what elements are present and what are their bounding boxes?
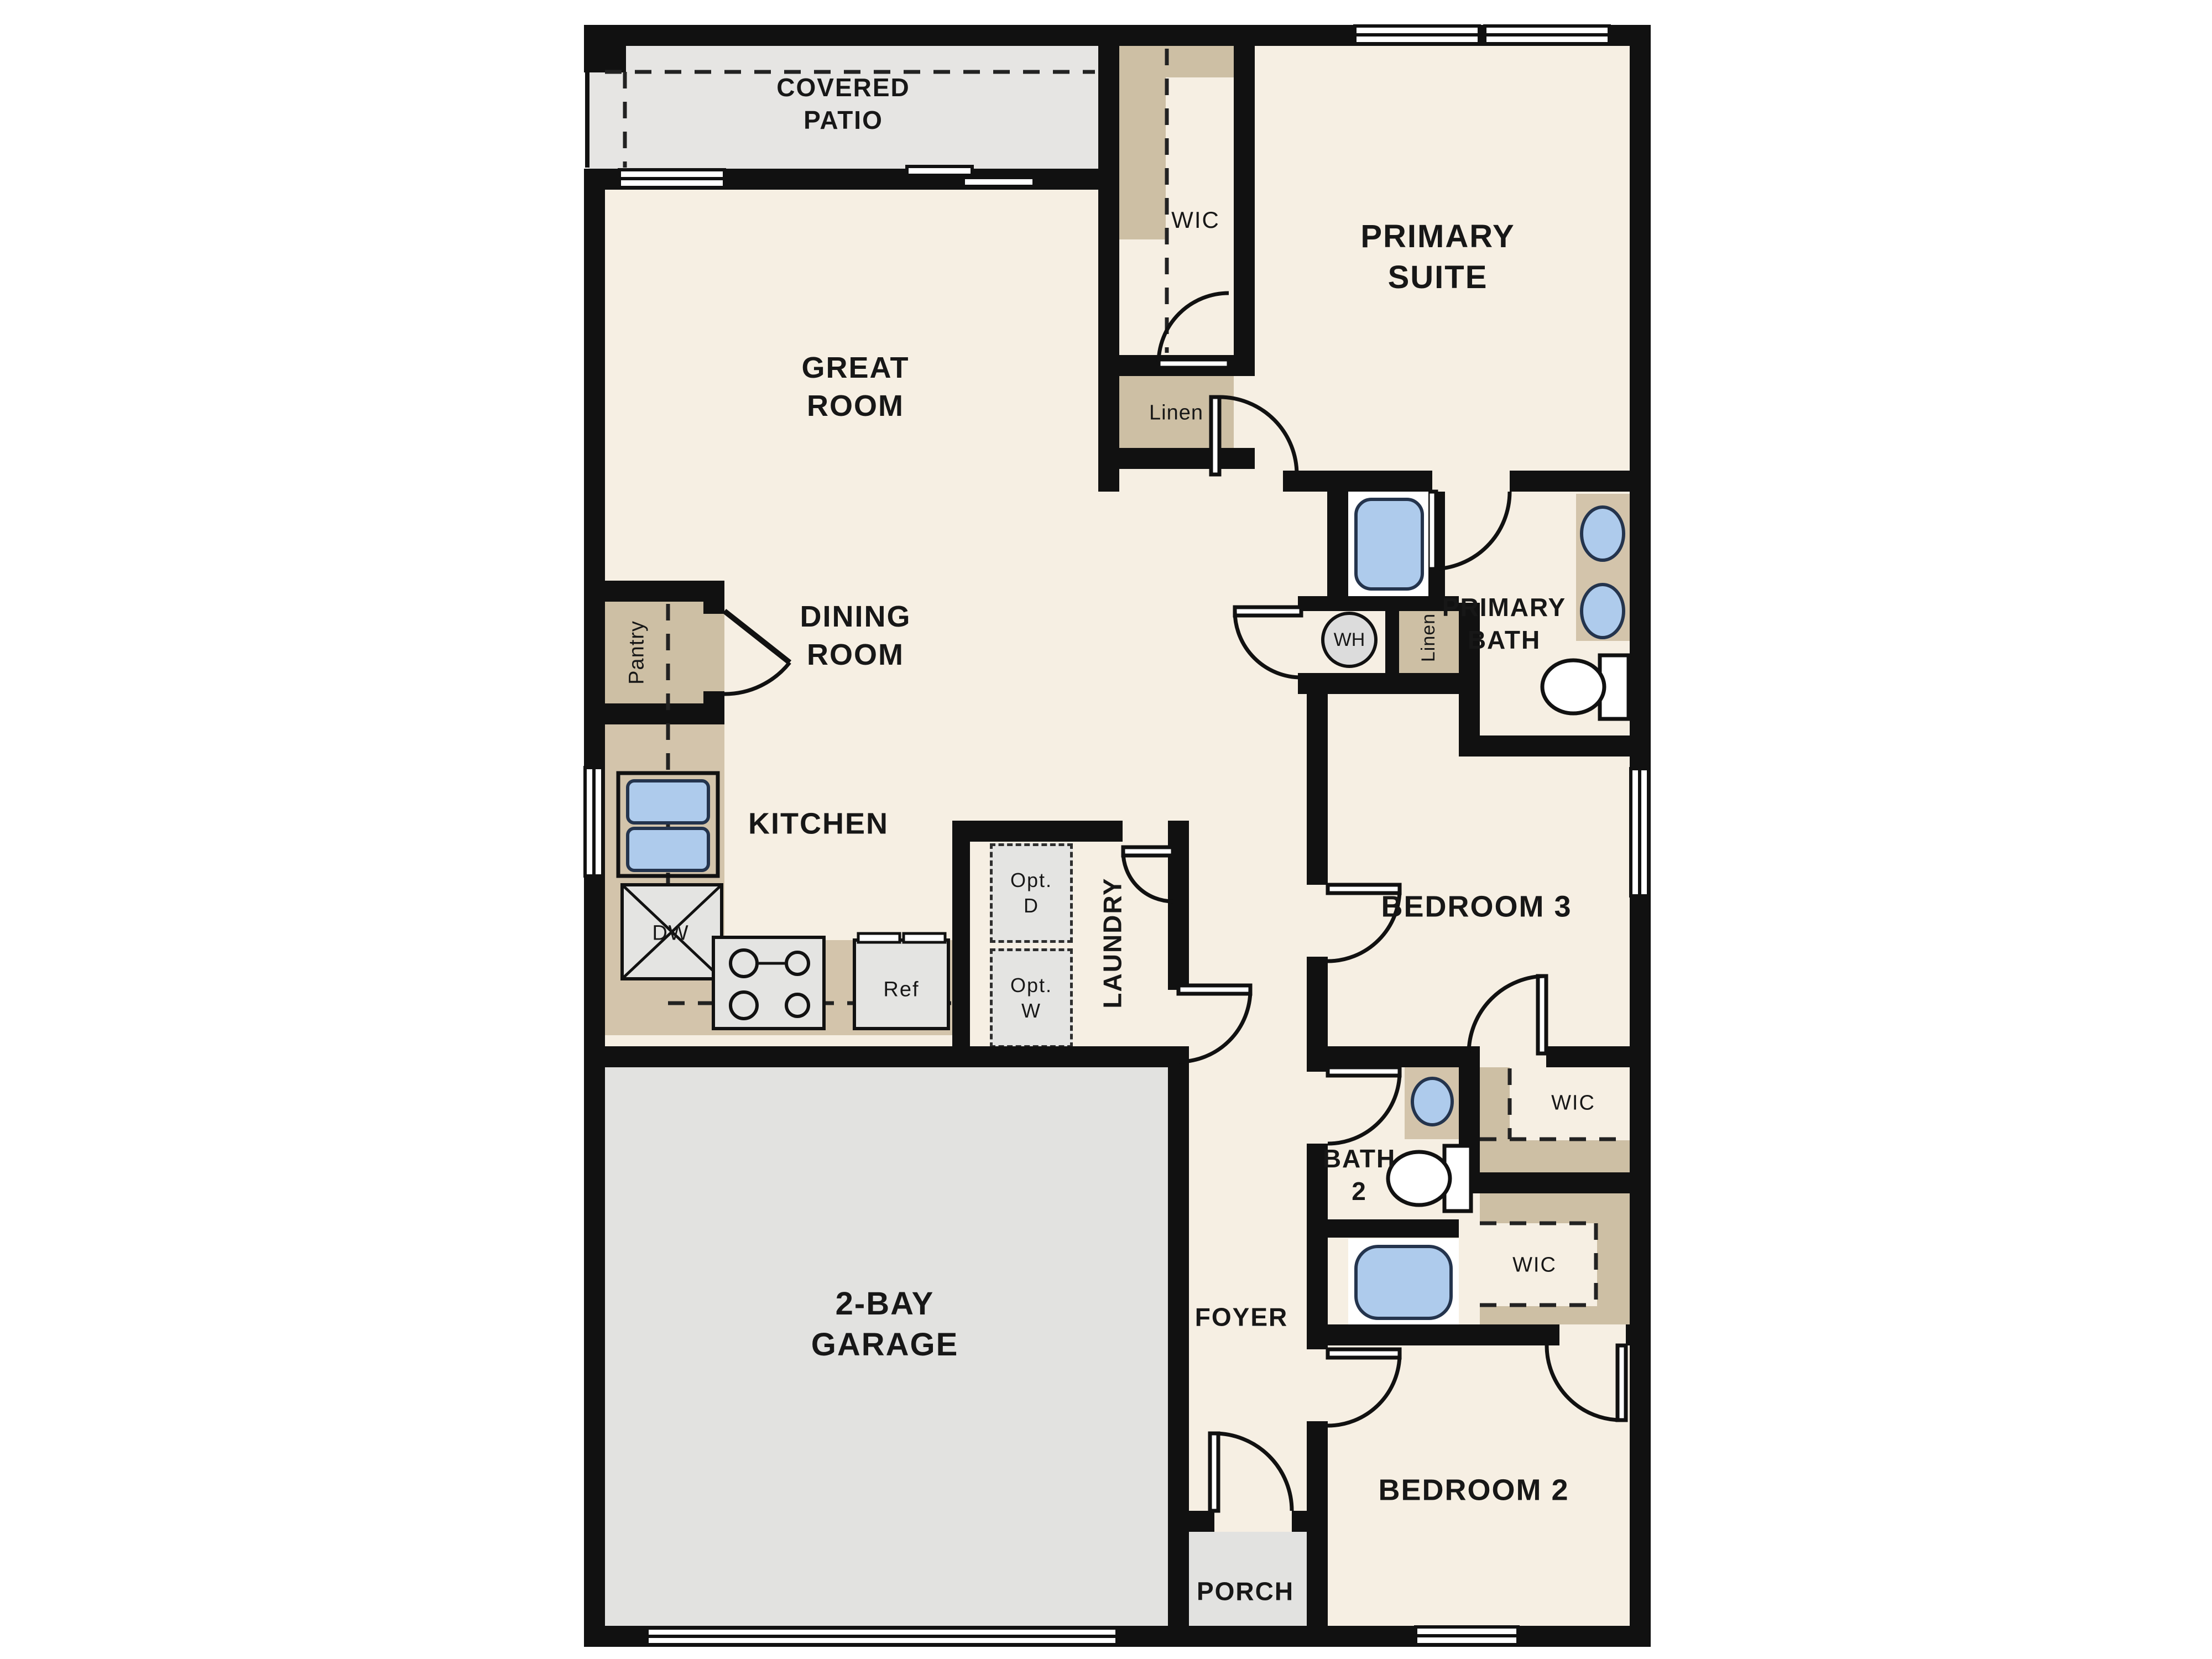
- dw-label: DW: [652, 920, 689, 947]
- primary-bath-door: [1428, 492, 1510, 569]
- primary-suite-window-2: [1485, 26, 1609, 44]
- pantry-label: Pantry: [624, 620, 651, 685]
- bedroom2-label: BEDROOM 2: [1378, 1471, 1569, 1509]
- bath2-toilet: [1388, 1146, 1471, 1211]
- patio-sliding-door: [907, 166, 1034, 186]
- bath2-label: BATH2: [1323, 1142, 1396, 1208]
- wic-primary-door: [1159, 293, 1229, 368]
- primary-vanity-sinks: [1582, 507, 1624, 638]
- linen-primary-label: Linen: [1149, 400, 1203, 427]
- pantry-door: [724, 611, 790, 694]
- bath2-tub: [1348, 1239, 1459, 1324]
- bath2-sink: [1412, 1078, 1452, 1125]
- range: [713, 937, 824, 1029]
- bedroom2-door: [1328, 1349, 1400, 1426]
- foyer-label: FOYER: [1195, 1301, 1288, 1334]
- symbols-overlay: [0, 0, 2212, 1659]
- kitchen-label: KITCHEN: [748, 805, 889, 843]
- primary-suite-door: [1211, 397, 1297, 474]
- bedroom2-window: [1416, 1627, 1518, 1645]
- greatroom-patio-window: [619, 170, 724, 187]
- bedroom3-label: BEDROOM 3: [1381, 888, 1572, 926]
- dining-room-label: DININGROOM: [800, 598, 911, 674]
- wh-label: WH: [1334, 628, 1365, 653]
- garage-door: [647, 1628, 1117, 1645]
- laundry-label: LAUNDRY: [1097, 877, 1129, 1008]
- wic-bed2-door: [1547, 1345, 1626, 1420]
- garage-label: 2-BAYGARAGE: [811, 1284, 959, 1365]
- wic-bed2-label: WIC: [1512, 1252, 1557, 1279]
- porch-label: PORCH: [1197, 1575, 1294, 1608]
- kitchen-window: [585, 768, 603, 876]
- wh-closet-door: [1235, 607, 1301, 677]
- wic-primary-label: WIC: [1171, 205, 1220, 235]
- linen-hall-label: Linen: [1417, 613, 1441, 662]
- foyer-hall-door: [1178, 985, 1250, 1062]
- covered-patio-label: COVEREDPATIO: [776, 71, 910, 137]
- front-door: [1210, 1433, 1292, 1511]
- ref-label: Ref: [883, 977, 919, 1004]
- bath2-door: [1328, 1067, 1400, 1144]
- bedroom3-window: [1631, 769, 1648, 896]
- opt-w-label: Opt.W: [1010, 973, 1052, 1024]
- primary-suite-label: PRIMARYSUITE: [1360, 216, 1515, 298]
- floor-plan: COVEREDPATIO GREATROOM DININGROOM KITCHE…: [0, 0, 2212, 1659]
- opt-d-label: Opt.D: [1010, 868, 1052, 919]
- primary-shower: [1348, 492, 1428, 596]
- kitchen-sink: [618, 773, 718, 876]
- wic-bed3-door: [1469, 976, 1546, 1053]
- laundry-door: [1123, 847, 1173, 901]
- primary-bath-label: PRIMARYBATH: [1442, 591, 1566, 656]
- wic-bed3-label: WIC: [1551, 1090, 1595, 1117]
- primary-suite-window-1: [1355, 26, 1479, 44]
- primary-toilet: [1542, 655, 1629, 719]
- great-room-label: GREATROOM: [802, 349, 910, 425]
